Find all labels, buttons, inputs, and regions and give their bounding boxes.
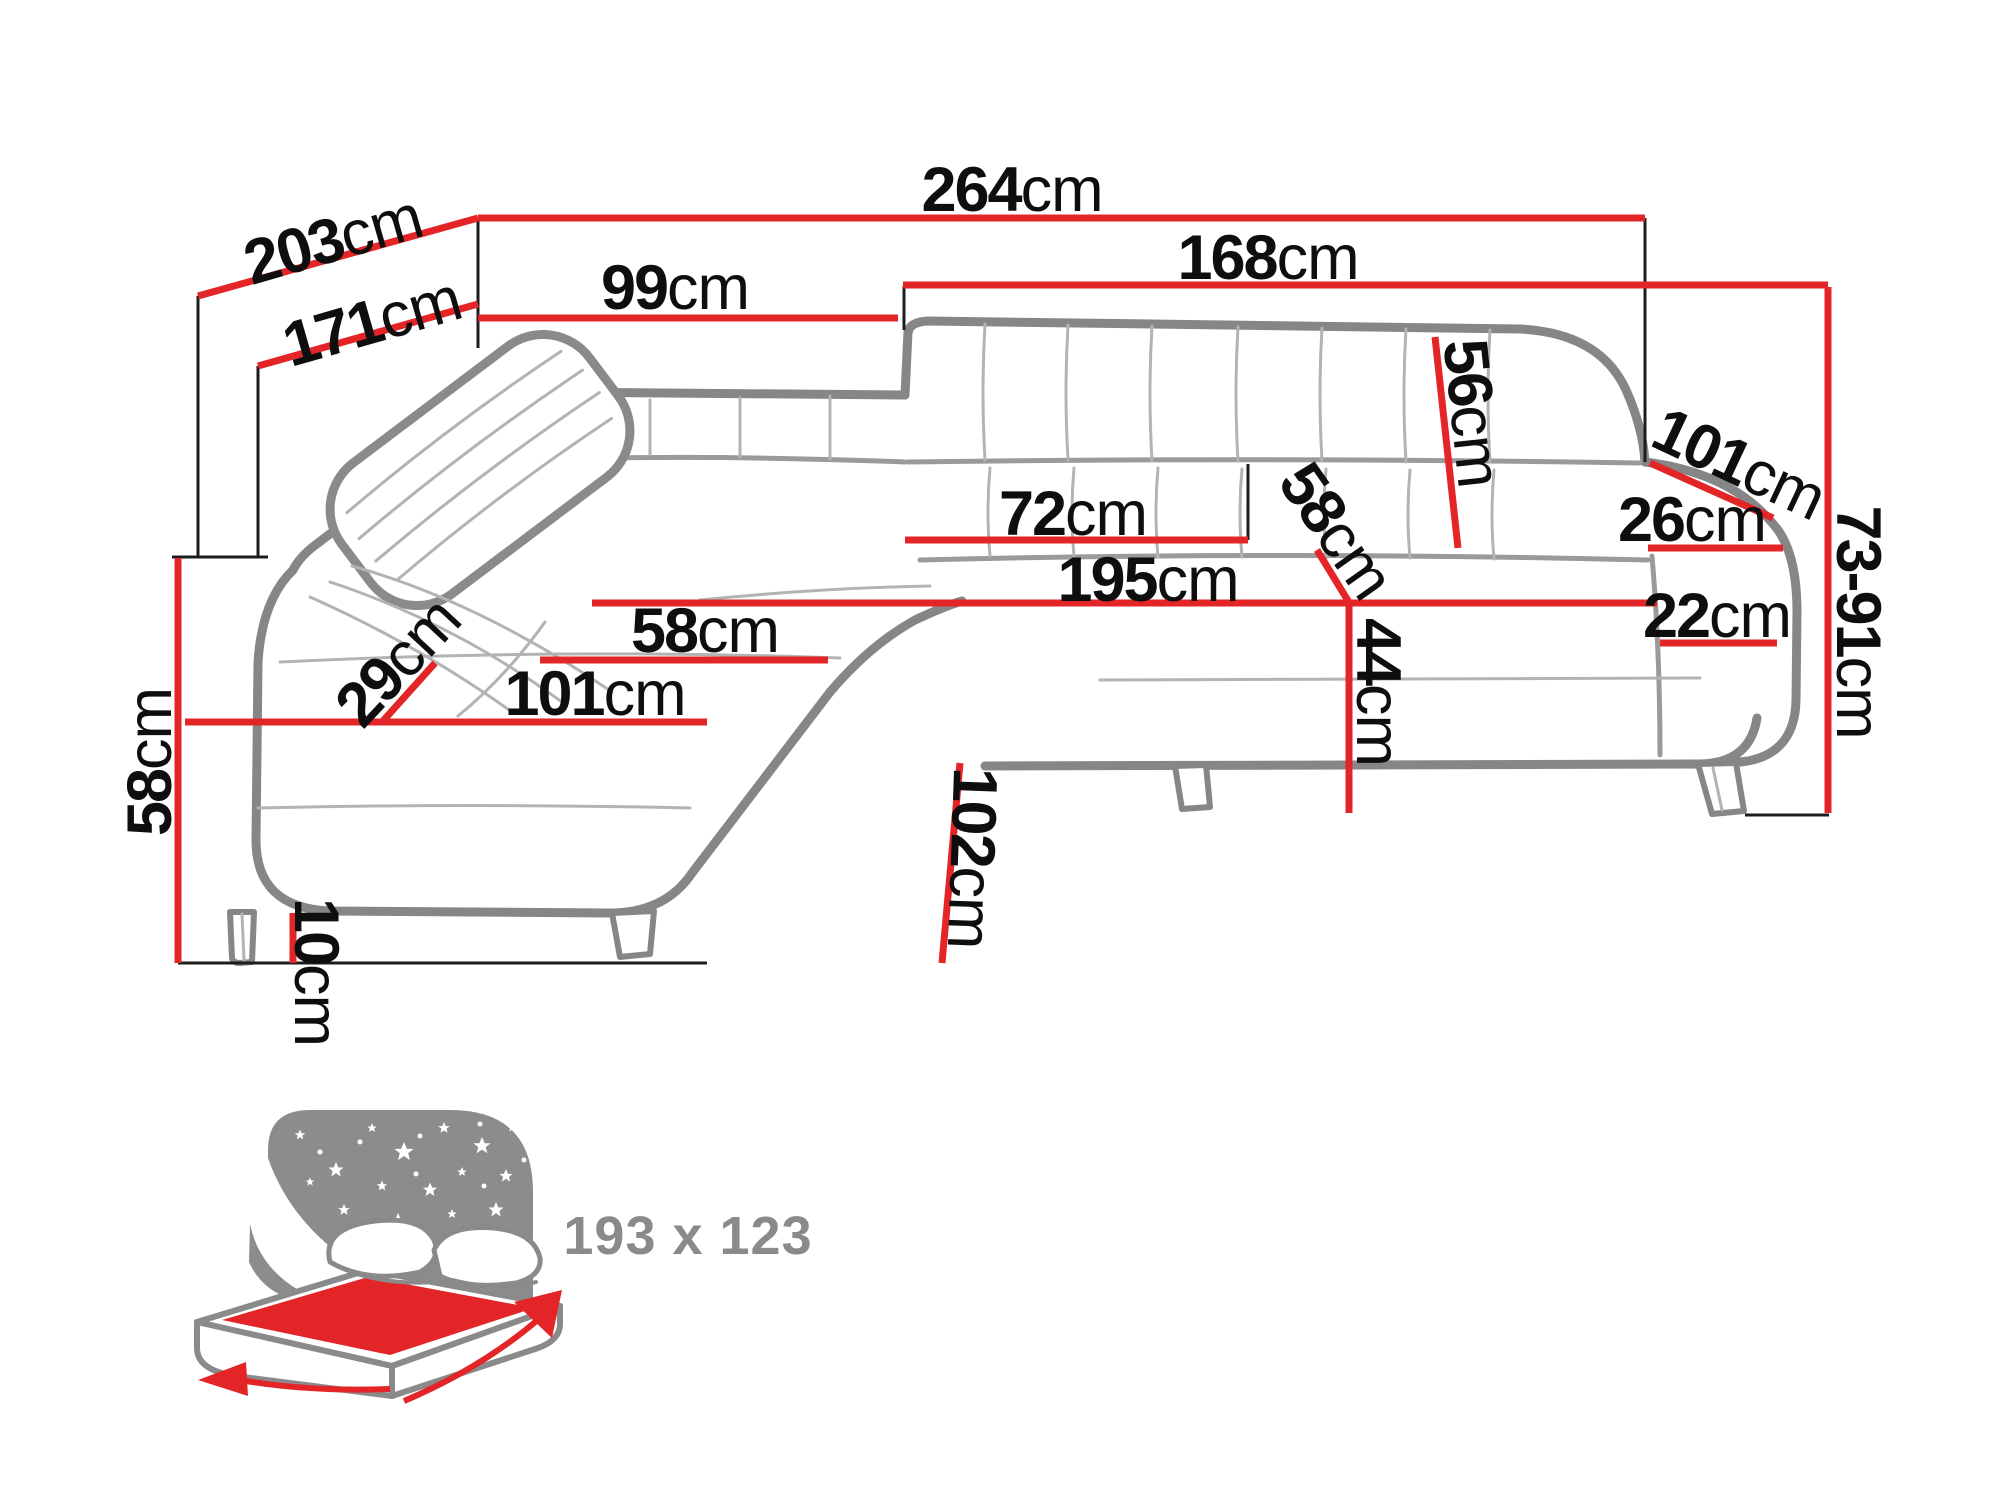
dim-label-168cm: 168cm bbox=[1177, 223, 1358, 293]
back-horizontal-seam bbox=[908, 460, 1640, 463]
star-dot bbox=[318, 1150, 323, 1155]
dim-label-73-91cm: 73-91cm bbox=[1823, 505, 1893, 738]
dim-label-10cm: 10cm bbox=[281, 898, 351, 1046]
dim-label-195cm: 195cm bbox=[1057, 545, 1238, 615]
bed-pillow-left bbox=[329, 1220, 436, 1276]
sofa-dimension-diagram-page: 203cm 171cm 264cm 168cm 99cm 56cm 101cm … bbox=[0, 0, 2000, 1500]
dim-label-264cm: 264cm bbox=[921, 155, 1102, 225]
dim-label-102cm: 102cm bbox=[934, 766, 1010, 949]
dim-label-58cm-vertical: 58cm bbox=[115, 688, 185, 836]
sofa-back-step-edge bbox=[905, 332, 908, 395]
star-dot bbox=[522, 1158, 527, 1163]
bed-size-label: 193 x 123 bbox=[563, 1206, 812, 1266]
dim-label-44cm: 44cm bbox=[1343, 618, 1413, 766]
foot-base-left bbox=[1175, 765, 1210, 809]
dim-label-58cm-diagonal: 58cm bbox=[1265, 450, 1407, 611]
dim-label-26cm: 26cm bbox=[1618, 485, 1766, 555]
dim-label-58cm-chaise: 58cm bbox=[631, 596, 779, 666]
dim-label-101cm-chaise: 101cm bbox=[504, 659, 685, 729]
dim-label-72cm: 72cm bbox=[999, 479, 1147, 549]
dim-label-22cm: 22cm bbox=[1643, 581, 1791, 651]
diagram-canvas: 203cm 171cm 264cm 168cm 99cm 56cm 101cm … bbox=[0, 0, 2000, 1500]
foot-chaise-left-seam bbox=[242, 914, 244, 960]
sofa-back-right-outline bbox=[908, 321, 1645, 462]
star-dot bbox=[418, 1134, 423, 1139]
foot-chaise-right bbox=[612, 911, 654, 957]
bed-pillow-right bbox=[434, 1227, 540, 1285]
dim-label-99cm: 99cm bbox=[601, 253, 749, 323]
star-dot bbox=[358, 1140, 363, 1145]
star-dot bbox=[482, 1184, 487, 1189]
star-dot bbox=[478, 1122, 483, 1127]
dim-label-56cm: 56cm bbox=[1429, 336, 1514, 491]
star-dot bbox=[414, 1172, 419, 1177]
seat-top-edge bbox=[920, 556, 1648, 561]
